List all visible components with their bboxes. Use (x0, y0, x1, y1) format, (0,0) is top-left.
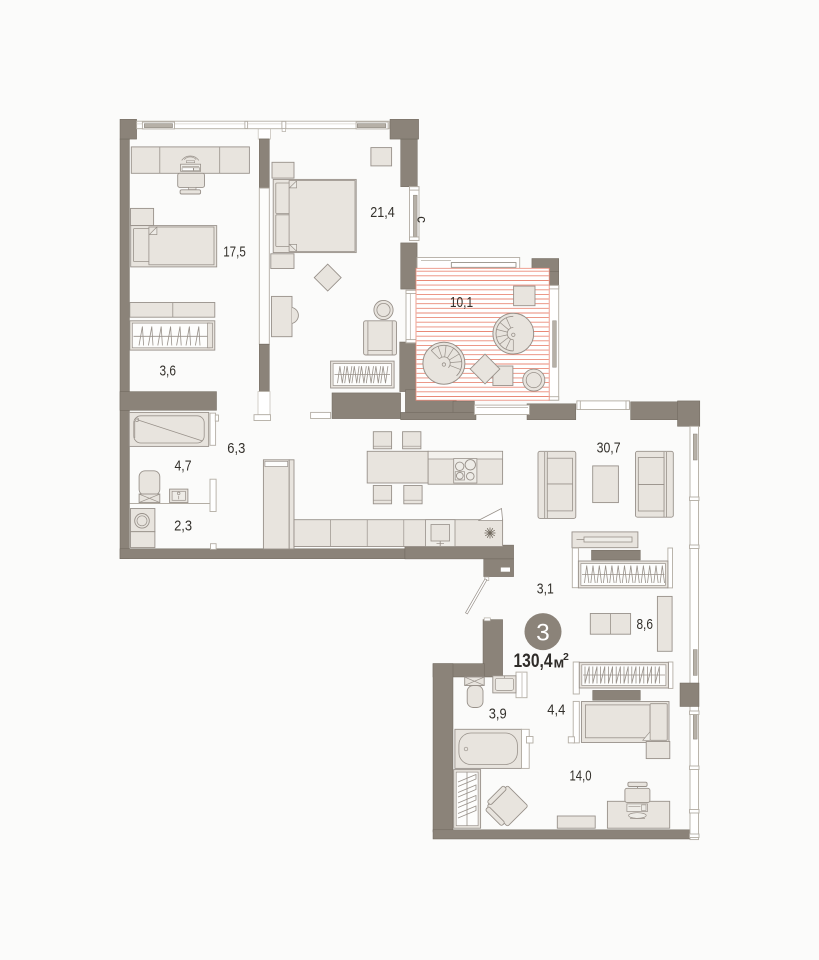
svg-text:30,7: 30,7 (597, 440, 621, 456)
svg-text:3,6: 3,6 (159, 364, 176, 380)
svg-text:2,3: 2,3 (174, 518, 192, 534)
svg-text:130,4: 130,4 (514, 651, 553, 672)
svg-text:4,7: 4,7 (175, 459, 192, 475)
svg-text:8,6: 8,6 (636, 617, 653, 633)
svg-text:3: 3 (536, 620, 550, 647)
svg-text:3,9: 3,9 (489, 706, 507, 722)
svg-text:3,1: 3,1 (537, 582, 554, 598)
svg-text:c: c (415, 216, 430, 223)
svg-text:10,1: 10,1 (450, 295, 473, 311)
svg-text:14,0: 14,0 (570, 768, 592, 784)
svg-text:2: 2 (563, 651, 569, 663)
svg-text:21,4: 21,4 (370, 205, 395, 221)
svg-text:4,4: 4,4 (547, 703, 565, 719)
svg-text:17,5: 17,5 (223, 245, 246, 261)
svg-text:6,3: 6,3 (227, 441, 245, 457)
